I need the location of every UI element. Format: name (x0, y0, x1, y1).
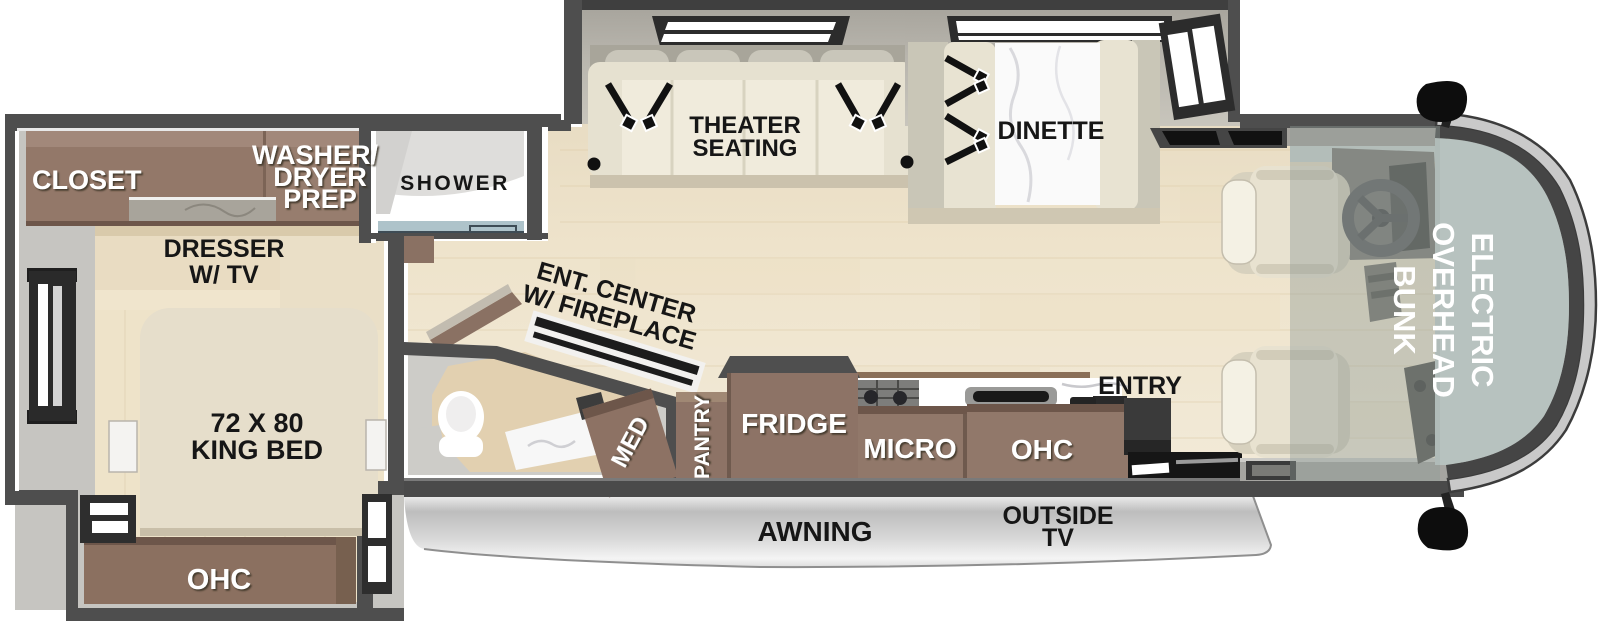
svg-text:DINETTE: DINETTE (998, 117, 1105, 145)
svg-text:ELECTRIC: ELECTRIC (1465, 233, 1500, 388)
svg-text:PANTRY: PANTRY (691, 395, 714, 479)
svg-text:SEATING: SEATING (693, 135, 798, 162)
svg-text:OHC: OHC (187, 564, 252, 596)
svg-text:ENTRY: ENTRY (1098, 372, 1182, 400)
svg-text:72 X 80: 72 X 80 (210, 408, 303, 438)
svg-text:CLOSET: CLOSET (32, 165, 142, 195)
svg-text:PREP: PREP (283, 184, 357, 214)
svg-text:TV: TV (1042, 524, 1074, 552)
svg-text:KING BED: KING BED (191, 435, 323, 465)
svg-text:OVERHEAD: OVERHEAD (1426, 222, 1461, 398)
svg-text:DRESSER: DRESSER (164, 235, 285, 263)
svg-text:BUNK: BUNK (1387, 265, 1422, 355)
svg-text:W/ TV: W/ TV (189, 261, 259, 289)
svg-text:AWNING: AWNING (757, 516, 872, 547)
svg-text:SHOWER: SHOWER (400, 172, 510, 195)
svg-text:FRIDGE: FRIDGE (741, 408, 847, 439)
svg-text:OHC: OHC (1011, 434, 1073, 465)
svg-text:MICRO: MICRO (863, 433, 956, 464)
